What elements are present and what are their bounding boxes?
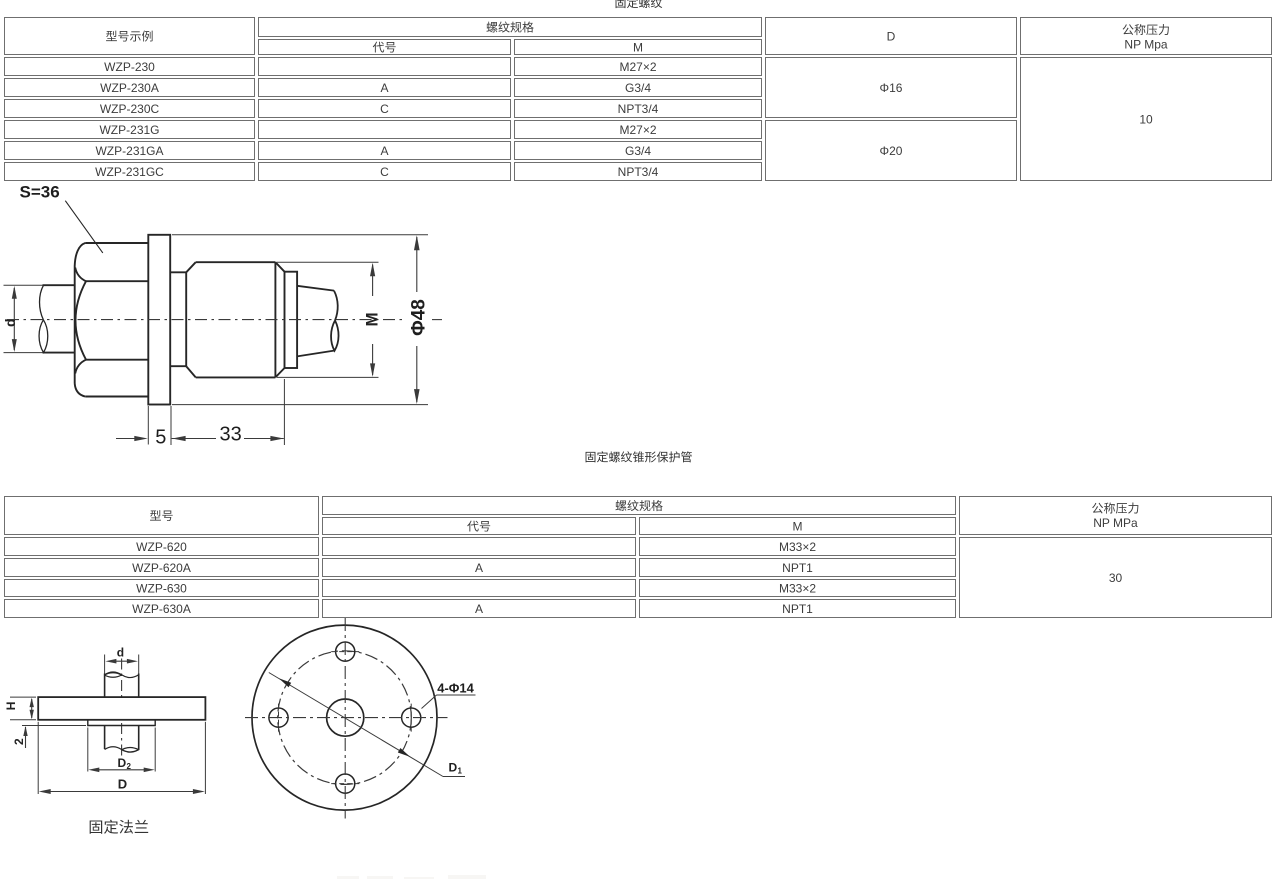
svg-text:NP Mpa: NP Mpa (1124, 37, 1167, 51)
svg-text:M: M (363, 312, 382, 326)
svg-text:WZP-230A: WZP-230A (100, 81, 159, 95)
svg-text:4-Φ14: 4-Φ14 (437, 682, 474, 696)
svg-text:1: 1 (458, 767, 463, 776)
svg-text:Φ48: Φ48 (409, 299, 430, 336)
svg-text:WZP-231GA: WZP-231GA (95, 144, 163, 158)
svg-text:10: 10 (1139, 112, 1153, 126)
svg-text:WZP-620: WZP-620 (136, 540, 187, 554)
svg-text:M: M (633, 40, 643, 54)
svg-text:WZP-231GC: WZP-231GC (95, 165, 164, 179)
svg-text:NPT3/4: NPT3/4 (618, 165, 659, 179)
svg-text:WZP-630: WZP-630 (136, 581, 187, 595)
svg-text:Φ16: Φ16 (880, 81, 903, 95)
svg-text:WZP-620A: WZP-620A (132, 561, 191, 575)
svg-text:A: A (380, 144, 388, 158)
svg-text:WZP-230: WZP-230 (104, 60, 155, 74)
svg-text:M: M (793, 519, 803, 533)
svg-text:2: 2 (12, 738, 26, 745)
svg-text:D: D (887, 29, 896, 43)
svg-text:WZP-630A: WZP-630A (132, 602, 191, 616)
svg-text:M27×2: M27×2 (619, 60, 656, 74)
svg-text:H: H (4, 702, 18, 711)
svg-text:D: D (118, 777, 127, 792)
svg-text:NPT1: NPT1 (782, 561, 813, 575)
svg-text:NP MPa: NP MPa (1093, 516, 1138, 530)
svg-text:D: D (449, 761, 458, 775)
svg-text:WZP-230C: WZP-230C (100, 102, 160, 116)
svg-text:NPT3/4: NPT3/4 (618, 102, 659, 116)
svg-text:M33×2: M33×2 (779, 581, 816, 595)
svg-text:G3/4: G3/4 (625, 81, 651, 95)
svg-text:D: D (118, 756, 127, 770)
svg-text:C: C (380, 165, 389, 179)
svg-text:C: C (380, 102, 389, 116)
svg-text:5: 5 (155, 427, 166, 449)
svg-text:33: 33 (220, 424, 242, 446)
svg-text:M33×2: M33×2 (779, 540, 816, 554)
svg-text:S=36: S=36 (20, 183, 60, 202)
svg-text:Φ20: Φ20 (880, 144, 903, 158)
svg-text:M27×2: M27×2 (619, 123, 656, 137)
svg-text:A: A (380, 81, 388, 95)
svg-text:G3/4: G3/4 (625, 144, 651, 158)
svg-text:A: A (475, 561, 483, 575)
svg-text:30: 30 (1109, 571, 1123, 585)
svg-text:2: 2 (127, 762, 132, 771)
svg-text:d: d (117, 646, 124, 660)
svg-text:WZP-231G: WZP-231G (99, 123, 159, 137)
svg-text:A: A (475, 602, 483, 616)
svg-text:NPT1: NPT1 (782, 602, 813, 616)
